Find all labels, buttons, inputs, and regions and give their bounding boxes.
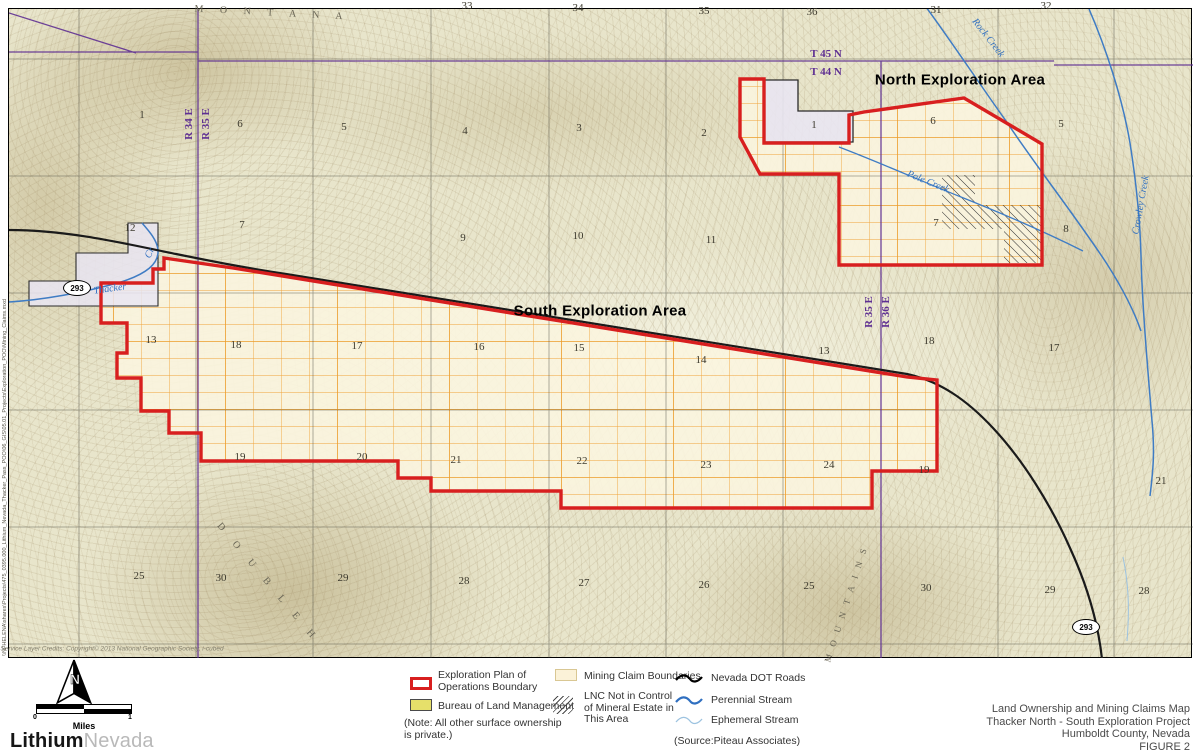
topographic-map: [8, 8, 1192, 658]
private-land-west: [29, 223, 158, 306]
section-grid-lines: [9, 9, 1193, 659]
south-exploration-boundary: [101, 258, 937, 508]
pole-creek: [839, 147, 1083, 251]
project-name: Thacker North - South Exploration Projec…: [986, 716, 1190, 729]
county-name: Humboldt County, Nevada: [986, 728, 1190, 741]
figure-number: FIGURE 2: [986, 741, 1190, 753]
perennial-line-icon: [674, 694, 704, 706]
crowley-creek: [1089, 9, 1153, 496]
lithium-nevada-logo: LithiumNevada: [10, 730, 154, 753]
north-exploration-boundary: [740, 79, 1042, 265]
logo-light-text: Nevada: [84, 730, 154, 752]
source-label: (Source:Piteau Associates): [674, 736, 800, 748]
exploration-boundary-label: Exploration Plan of Operations Boundary: [438, 670, 537, 693]
highway-293-shield: 293: [63, 280, 91, 296]
north-arrow-icon: N: [50, 659, 98, 705]
figure-page: \\NFHELENA\shares\Projects\475_0395.000_…: [0, 0, 1200, 753]
scale-zero-label: 0: [33, 714, 37, 721]
exploration-boundary-swatch: [410, 677, 432, 690]
claim-grid-north: [740, 79, 1042, 265]
scale-bar: [36, 704, 132, 714]
perennial-label: Perennial Stream: [711, 695, 792, 707]
ownership-note: (Note: All other surface ownership is pr…: [404, 718, 562, 741]
file-path-text: \\NFHELENA\shares\Projects\475_0395.000_…: [2, 6, 8, 656]
rock-creek: [926, 9, 1141, 331]
township-range-lines: [9, 9, 1193, 659]
scale-one-label: 1: [128, 714, 132, 721]
streams: [9, 9, 1153, 641]
blm-swatch: [410, 699, 432, 711]
claim-grid-south: [101, 258, 937, 508]
claims-swatch: [555, 669, 577, 681]
roads-label: Nevada DOT Roads: [711, 673, 805, 685]
lnc-label: LNC Not in Control of Mineral Estate in …: [584, 691, 674, 726]
ephemeral-label: Ephemeral Stream: [711, 715, 799, 727]
road-sr293: [9, 230, 1102, 659]
logo-bold-text: Lithium: [10, 730, 84, 752]
lnc-hatched-area: [942, 175, 1042, 263]
hatch-swatch: [553, 696, 573, 714]
north-arrow-letter: N: [70, 672, 80, 687]
footer-bar: N 0 1 Miles LithiumNevada Exploration Pl…: [0, 658, 1200, 753]
ephemeral-stream: [1123, 557, 1128, 641]
title-block: Land Ownership and Mining Claims Map Tha…: [986, 703, 1190, 753]
roads-line-icon: [674, 672, 704, 684]
map-title: Land Ownership and Mining Claims Map: [986, 703, 1190, 716]
map-artwork: [9, 9, 1193, 659]
private-land-north: [764, 80, 853, 142]
ephemeral-line-icon: [674, 714, 704, 726]
highway-293-shield: 293: [1072, 619, 1100, 635]
